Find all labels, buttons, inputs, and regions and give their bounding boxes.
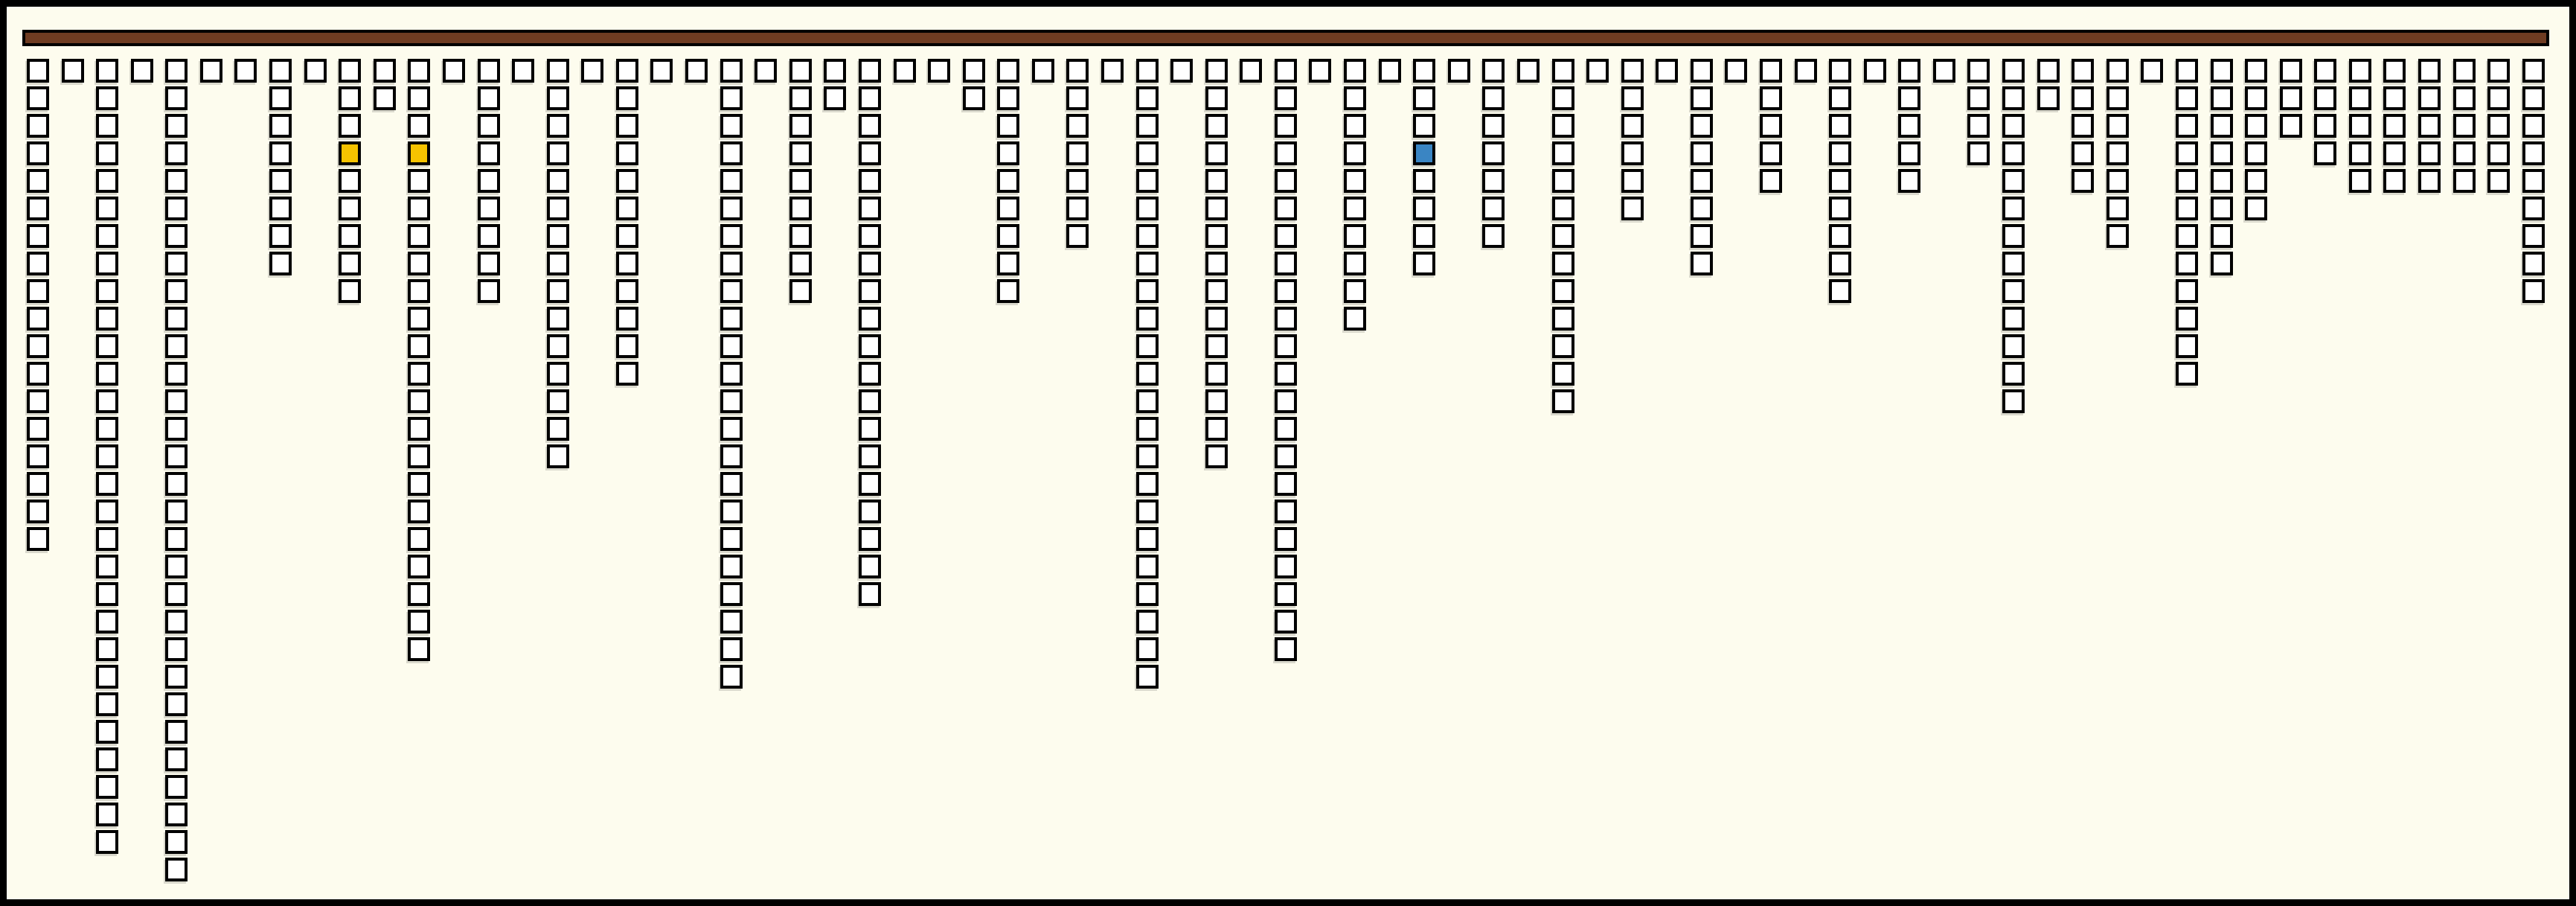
board-background — [0, 0, 2576, 906]
outer-frame — [0, 0, 2576, 906]
